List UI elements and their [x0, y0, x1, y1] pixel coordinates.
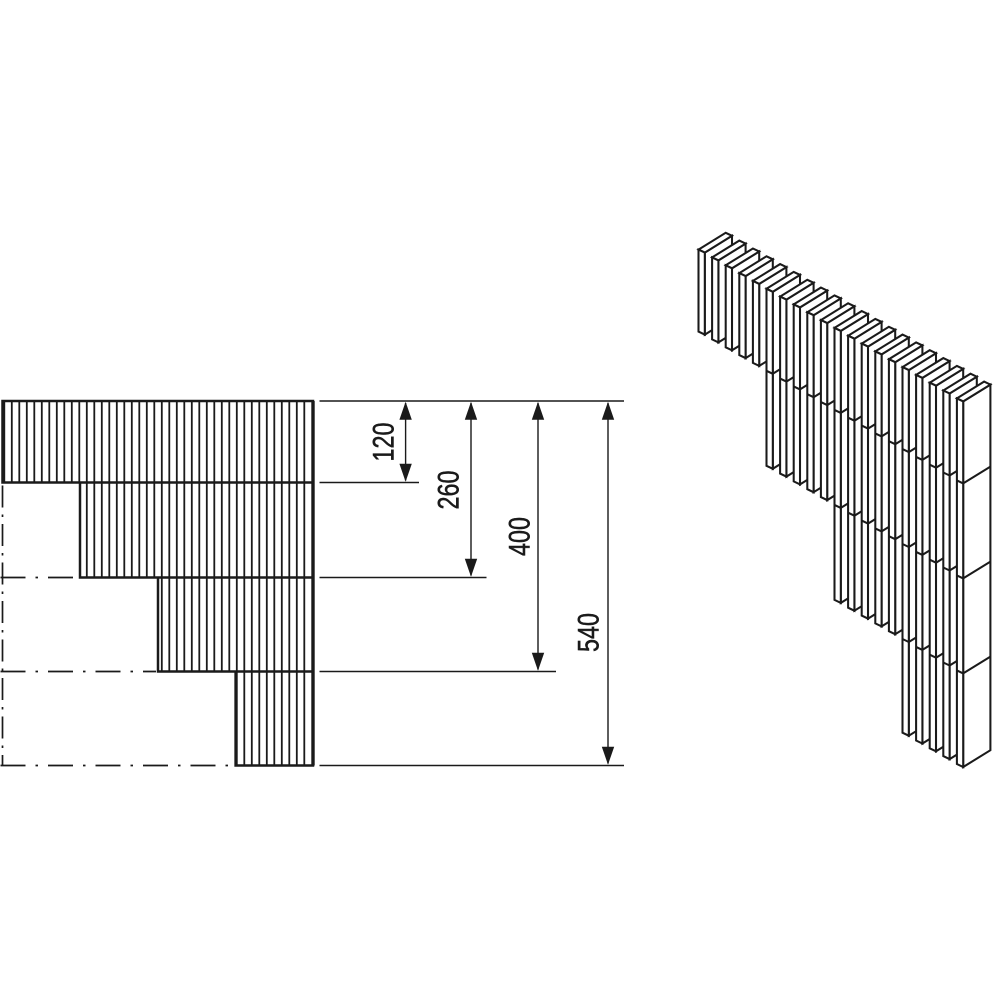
svg-text:540: 540 — [573, 613, 606, 652]
svg-text:260: 260 — [433, 471, 466, 510]
svg-text:120: 120 — [368, 423, 401, 462]
svg-text:400: 400 — [504, 517, 537, 556]
